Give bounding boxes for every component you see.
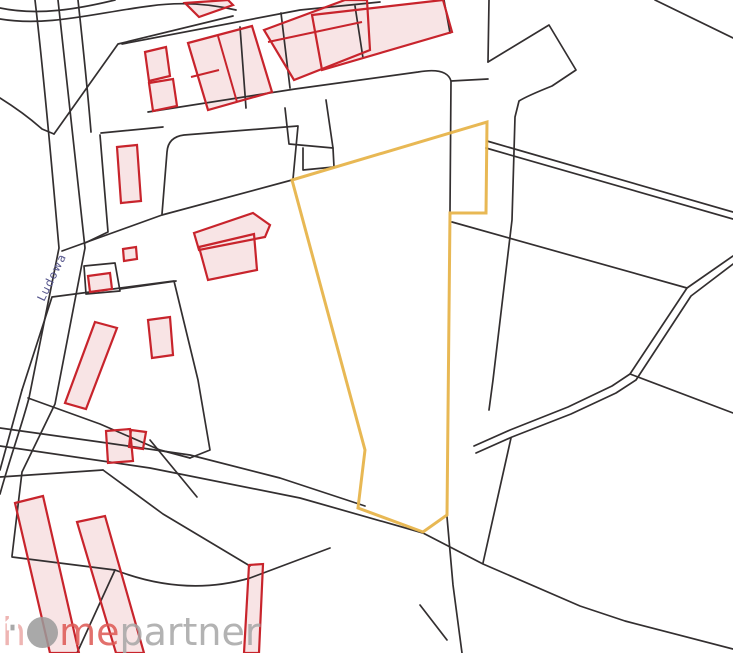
rounded-parcel	[162, 126, 298, 214]
double-road-2b	[476, 264, 733, 453]
east-branch	[630, 374, 733, 413]
cadastral-map: Ludowa h me partner	[0, 0, 733, 653]
top-right-vertical	[488, 0, 489, 62]
single-diag-east	[452, 222, 687, 288]
top-right-horizontal	[451, 79, 488, 81]
road-left-outer	[0, 0, 59, 494]
double-road-2a	[474, 256, 733, 446]
pentagon-and-tail	[488, 25, 576, 410]
stepped-parcel-b	[303, 148, 334, 170]
watermark-me: me	[59, 613, 119, 651]
watermark: h me partner	[2, 612, 261, 652]
tail-lower	[483, 438, 511, 563]
watermark-partner: partner	[120, 613, 261, 651]
band-inner-line	[101, 127, 163, 133]
road-left-third	[78, 0, 91, 132]
band-bottom-line	[148, 71, 451, 211]
steep-short	[150, 440, 197, 497]
highlighted-parcel[interactable]	[292, 122, 487, 532]
double-road-1a	[487, 141, 733, 212]
bottom-band-flat	[0, 470, 103, 477]
house-icon	[27, 617, 58, 648]
cadastral-map-canvas: Ludowa	[0, 0, 733, 653]
below-highlight-vert	[447, 517, 462, 653]
double-road-1b	[486, 148, 733, 219]
lower-left-curve	[115, 548, 330, 586]
top-right-diag	[655, 0, 733, 38]
bottom-band-1	[0, 428, 365, 506]
corridor-left	[85, 135, 108, 243]
stepped-parcel-a	[285, 100, 333, 148]
below-highlight-diag	[420, 605, 447, 640]
